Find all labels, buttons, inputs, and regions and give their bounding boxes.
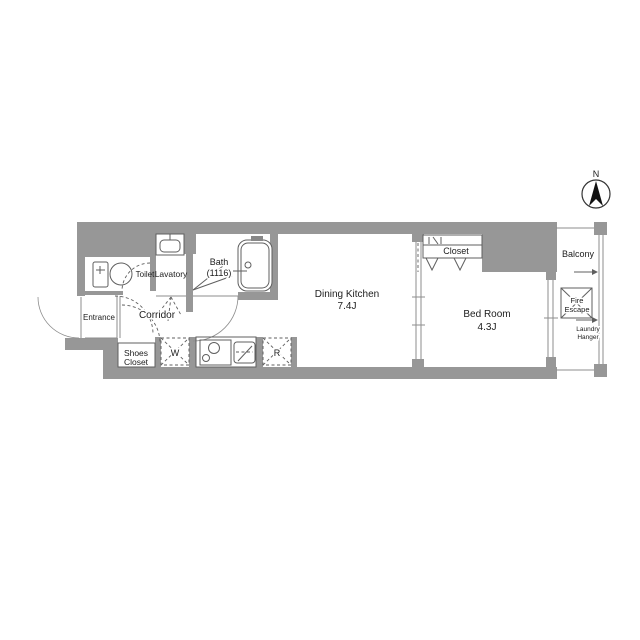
label-balcony: Balcony <box>562 249 595 259</box>
kitchen-sink-icon <box>234 342 255 363</box>
label-laundry-hanger-line1: Laundry <box>576 326 600 333</box>
compass-north-label: N <box>593 169 600 179</box>
bathtub-faucet-icon <box>251 236 263 241</box>
stove-burner-small <box>203 355 210 362</box>
label-fire-escape-line2: Escape <box>564 305 589 314</box>
wall-bath-bottom <box>238 292 272 300</box>
label-laundry-hanger-line2: Hanger <box>577 334 599 341</box>
label-fire-escape-line1: Fire <box>571 296 584 305</box>
wall-bottom <box>103 367 557 379</box>
toilet-bowl-icon <box>110 263 132 285</box>
kitchen-sink-diagonal <box>238 346 252 361</box>
wall-bedroom-block <box>482 234 557 272</box>
corridor-doors <box>115 296 238 343</box>
label-dining-kitchen-line2: 7.4J <box>338 301 357 312</box>
sliding-partition <box>412 242 425 359</box>
compass-icon: N <box>582 169 610 208</box>
kitchen-row <box>161 337 291 367</box>
closet-folding-door-v1 <box>426 258 438 270</box>
toilet-tank-icon <box>93 262 108 287</box>
bath-door-fold-line-2 <box>193 276 232 290</box>
label-shoes-closet-line2: Closet <box>124 357 149 367</box>
bedroom-window <box>544 280 558 357</box>
wall-stub-fridge-right <box>291 337 297 367</box>
entrance-door-arc <box>38 297 79 338</box>
wall-top <box>77 222 557 234</box>
wall-stub-washer-left <box>155 337 161 367</box>
dk-door-arc <box>193 296 238 341</box>
label-refrigerator: R <box>274 348 281 358</box>
closet-folding-door-v2 <box>454 258 466 270</box>
label-toilet: Toilet <box>136 270 155 279</box>
laundry-pole-arrow-2 <box>592 317 598 323</box>
label-washer: W <box>171 348 180 358</box>
wall-stub-fridge-left <box>256 337 263 367</box>
label-bedroom-line2: 4.3J <box>478 322 497 333</box>
wall-window-stub-top <box>546 272 556 280</box>
wall-window-stub-bottom <box>546 357 556 367</box>
label-entrance: Entrance <box>83 313 116 322</box>
label-bath-line1: Bath <box>210 257 229 267</box>
wall-partition-stub-bottom <box>412 359 424 367</box>
balcony-corner-post-bottom <box>594 364 607 377</box>
floor-plan-page: N Toilet Lavatory Bath (1116) Entrance C… <box>0 0 640 640</box>
wall-below-entrance <box>65 338 118 350</box>
wall-left <box>77 234 85 296</box>
bathtub-icon <box>238 240 272 291</box>
floor-plan-drawing: N Toilet Lavatory Bath (1116) Entrance C… <box>0 0 640 640</box>
label-lavatory: Lavatory <box>155 269 188 279</box>
label-bath-line2: (1116) <box>207 268 232 278</box>
label-dining-kitchen-line1: Dining Kitchen <box>315 289 379 300</box>
wall-block-above-toilet <box>77 234 156 257</box>
label-corridor: Corridor <box>139 310 176 321</box>
label-closet: Closet <box>443 246 469 256</box>
balcony-corner-post-top <box>594 222 607 235</box>
wall-toilet-bottom <box>83 291 123 295</box>
wall-stub-washer-right <box>189 337 196 367</box>
wall-partition-stub-top <box>412 234 424 242</box>
bath-area <box>193 236 272 291</box>
laundry-pole-arrow-1 <box>592 269 598 275</box>
stove-burner-large <box>209 343 220 354</box>
label-bedroom-line1: Bed Room <box>463 309 510 320</box>
